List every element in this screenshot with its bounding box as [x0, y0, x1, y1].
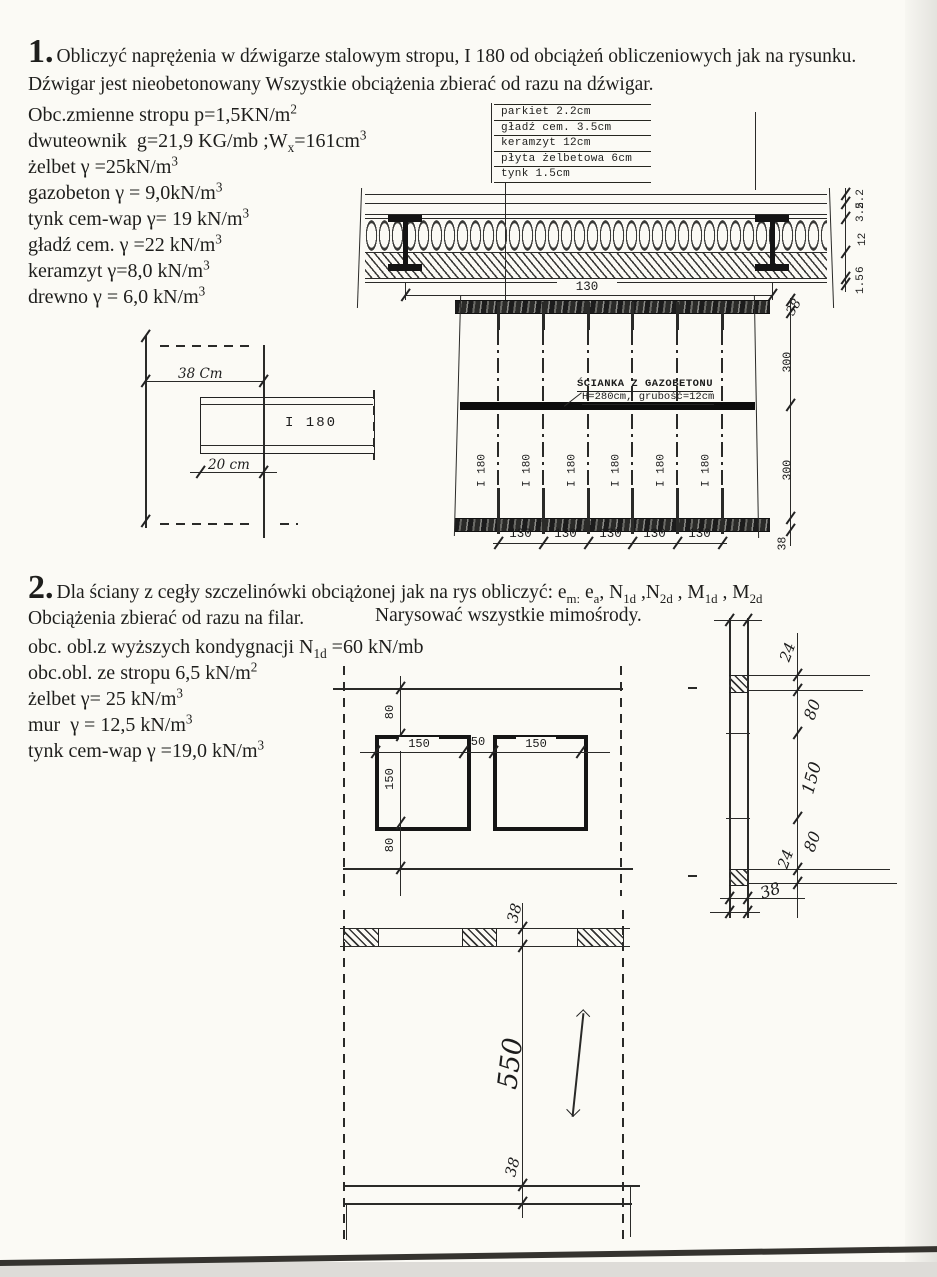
property-line: tynk cem-wap γ= 19 kN/m3 [28, 206, 367, 232]
room-boundary-dashed [622, 910, 624, 1245]
partition-label-line2: H=280cm, grubość=12cm [582, 391, 714, 405]
problem2-statement: 2.Dla ściany z cegły szczelinówki obciąż… [28, 574, 916, 607]
scan-bottom-margin [0, 1262, 937, 1277]
problem2-line2-right: Narysować wszystkie mimośrody. [375, 605, 642, 627]
arrowhead-down-icon [566, 1103, 580, 1117]
ceiling-line [747, 869, 890, 870]
problem2-number: 2. [28, 569, 54, 606]
wall-boundary-dashed [343, 666, 345, 896]
break-dash [688, 875, 704, 877]
wall-end-line [346, 1203, 347, 1240]
masonry-pier-hatch [343, 929, 379, 946]
elevation-dim-label: 80 [383, 697, 397, 727]
section-dim-label: 150 [798, 760, 826, 797]
masonry-pier-hatch [577, 929, 624, 946]
problem1-statement: 1.Obliczyć naprężenia w dźwigarze stalow… [28, 38, 916, 99]
legend-row: tynk 1.5cm [494, 167, 651, 183]
i-beam-web [403, 221, 408, 265]
scanned-exam-page: 1.Obliczyć naprężenia w dźwigarze stalow… [0, 0, 937, 1277]
layer-dim-label: 1.5 [855, 270, 867, 294]
problem1-material-properties: Obc.zmienne stropu p=1,5KN/m2 dwuteownik… [28, 102, 367, 310]
property-line: żelbet γ =25kN/m3 [28, 154, 367, 180]
break-dash [688, 687, 704, 689]
ceiling-line [747, 690, 863, 691]
joist-end [721, 302, 724, 330]
span-dim-label: 550 [492, 1036, 529, 1091]
legend-row: parkiet 2.2cm [494, 104, 651, 121]
problem2-statement-text: Dla ściany z cegły szczelinówki obciążon… [57, 582, 763, 603]
floor-layers-legend: parkiet 2.2cm gładź cem. 3.5cm keramzyt … [494, 104, 651, 183]
wall-face-line [145, 336, 147, 528]
break-line [829, 188, 835, 308]
property-line: dwuteownik g=21,9 KG/mb ;Wx=161cm3 [28, 128, 367, 154]
dimension-line [493, 543, 727, 544]
wall-line [340, 946, 630, 947]
beam-flange-line [200, 404, 373, 405]
break-line [454, 296, 462, 536]
plan-dim-chain [790, 298, 791, 546]
plan-dim-label: 300 [782, 343, 795, 373]
hidden-edge-line [160, 345, 250, 347]
arrow-shaft [572, 1013, 584, 1117]
floor-slab-hatch [729, 675, 748, 693]
plan-dim-label: 38 [501, 1155, 523, 1178]
beam-plan-drawing: I 180 I 180 I 180 I 180 I 180 [450, 296, 810, 562]
property-line: drewno γ = 6,0 kN/m3 [28, 284, 367, 310]
beam-label: I 180 [567, 448, 580, 494]
spacing-dim-label: 130 [588, 527, 633, 541]
property-line: Obc.zmienne stropu p=1,5KN/m2 [28, 102, 367, 128]
problem1-statement-text: Obliczyć naprężenia w dźwigarze stalowym… [28, 46, 856, 95]
floor-slab-hatch [729, 869, 748, 886]
joist-end [676, 302, 679, 330]
pier-plan-drawing: 38 550 38 [335, 900, 915, 1250]
elevation-dim-label: 150 [399, 737, 439, 751]
floor-line [333, 688, 623, 690]
beam-label: I 180 [701, 448, 714, 494]
spacing-dim-label: 130 [498, 527, 543, 541]
beam-label: I 180 [285, 415, 337, 431]
hidden-edge-line [160, 523, 255, 525]
legend-row: płyta żelbetowa 6cm [494, 152, 651, 168]
joist-end [542, 302, 545, 330]
problem1-number: 1. [28, 33, 54, 70]
wall-boundary-dashed [620, 666, 622, 896]
legend-leader-line [755, 112, 756, 190]
legend-row: gładź cem. 3.5cm [494, 121, 651, 137]
problem2-line2-left: Obciążenia zbierać od razu na filar. [28, 608, 304, 630]
wall-line [345, 1203, 632, 1205]
wall-end-line [630, 1185, 631, 1237]
top-reference-line [714, 620, 762, 621]
wall-width-dim-label: 38 Cm [178, 366, 223, 382]
property-line: gazobeton γ = 9,0kN/m3 [28, 180, 367, 206]
span-direction-arrow [557, 1004, 599, 1126]
wall-section-drawing: 24 80 150 80 24 38 [690, 610, 930, 930]
section-dim-label: 80 [800, 829, 825, 855]
layer-dim-label: 12 [857, 222, 869, 246]
window-head-line [726, 733, 750, 734]
layer-line [365, 194, 827, 195]
beam-label: I 180 [611, 448, 624, 494]
spacing-dim-label: 130 [632, 527, 677, 541]
spacing-dim-label: 130 [543, 527, 588, 541]
legend-row: keramzyt 12cm [494, 136, 651, 152]
wall-line [345, 1185, 640, 1187]
joist-end [587, 302, 590, 330]
layer-line [365, 203, 827, 204]
i-beam-web [770, 221, 775, 265]
beam-label: I 180 [656, 448, 669, 494]
joist-end [631, 302, 634, 330]
hidden-edge-line [280, 523, 298, 525]
layer-dim-label: 3.5 [855, 198, 867, 222]
section-dim-label: 80 [800, 697, 825, 723]
ceiling-line [747, 675, 870, 676]
beam-support-detail-drawing: 38 Cm I 180 20 cm [100, 330, 420, 545]
scan-edge-shadow [905, 0, 937, 1277]
i-beam-symbol [388, 215, 422, 271]
elevation-dim-label: 150 [383, 764, 397, 794]
load-line: obc. obl.z wyższych kondygnacji N1d =60 … [28, 634, 424, 660]
section-dim-label: 24 [774, 847, 797, 871]
elevation-dim-label: 150 [516, 737, 556, 751]
i-beam-flange [755, 264, 789, 271]
elevation-dim-label: 80 [383, 830, 397, 860]
hidden-edge-line [373, 390, 375, 460]
window-sill-line [726, 818, 750, 819]
span-dimension-label: 130 [557, 280, 617, 294]
floor-section-drawing: 130 [357, 194, 909, 306]
arrowhead-up-icon [576, 1009, 590, 1023]
floor-line [343, 868, 633, 870]
beam-label: I 180 [522, 448, 535, 494]
horizontal-dim-line [360, 752, 610, 753]
property-line: keramzyt γ=8,0 kN/m3 [28, 258, 367, 284]
masonry-pier-hatch [462, 929, 497, 946]
beam-label: I 180 [477, 448, 490, 494]
section-dim-label: 24 [776, 640, 799, 664]
vertical-dim-line [400, 676, 401, 896]
bearing-dim-label: 20 cm [208, 457, 250, 473]
break-line [754, 296, 760, 538]
i-beam-symbol [755, 215, 789, 271]
legend-left-rule [491, 103, 492, 183]
room-boundary-dashed [343, 910, 345, 1245]
plan-dim-label: 300 [782, 451, 795, 481]
partition-label-line1: ŚCIANKA Z GAZOBETONU [577, 378, 713, 392]
joist-end [497, 302, 500, 330]
spacing-dim-label: 130 [677, 527, 722, 541]
beam-flange-line [200, 445, 373, 446]
wall-elevation-drawing: 80 150 80 150 50 150 [333, 660, 643, 900]
break-line [357, 188, 363, 308]
i-beam-flange [388, 264, 422, 271]
property-line: gładź cem. γ =22 kN/m3 [28, 232, 367, 258]
elevation-dim-label: 50 [463, 735, 493, 749]
plan-dim-label: 38 [777, 527, 790, 551]
